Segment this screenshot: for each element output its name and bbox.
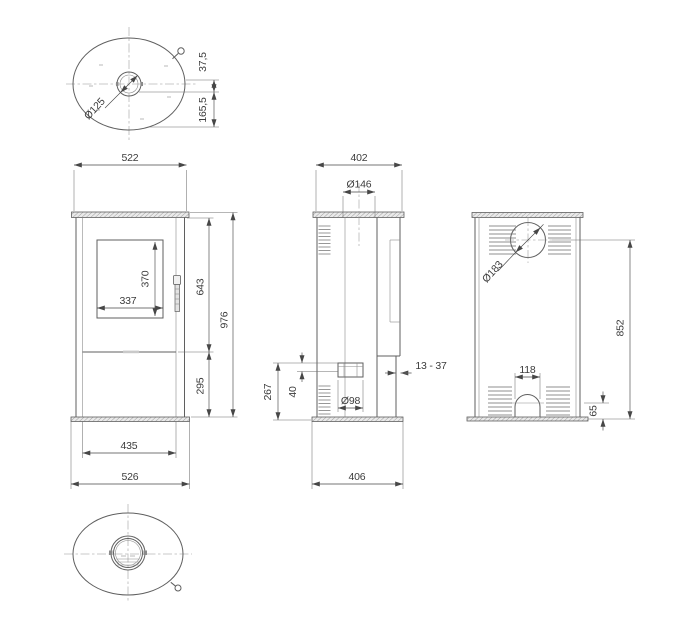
dim-front-top-plate-width: 522 [122, 152, 139, 164]
side-front-vents-top [319, 226, 331, 254]
dim-side-rear-outlet-offset: 40 [287, 386, 299, 398]
bottom-view-centerlines [64, 504, 192, 603]
dim-top-flue-diameter: Ø125 [82, 95, 108, 122]
back-vents-bottom-right [546, 387, 570, 415]
dim-front-upper-section-height: 643 [195, 278, 207, 295]
dim-top-rear-offset: 165,5 [197, 97, 209, 123]
technical-drawing-page: Ø125 37,5 165,5 [0, 0, 700, 628]
dim-front-total-height: 976 [219, 311, 231, 328]
dim-front-glass-width: 337 [120, 295, 137, 307]
front-view-dimensions: 522 370 337 643 295 976 435 526 [71, 152, 238, 489]
side-view: 402 Ø146 40 267 Ø98 13 - 37 406 [262, 152, 447, 489]
dim-back-rear-flue-center-height: 852 [615, 319, 627, 336]
front-view-outline [71, 212, 190, 422]
side-rear-outlet [338, 363, 363, 377]
bottom-flue-handle [171, 582, 181, 591]
front-view: 522 370 337 643 295 976 435 526 [71, 152, 238, 489]
dim-side-wall-gap-range: 13 - 37 [415, 360, 447, 372]
dim-side-rear-outlet-diameter: Ø98 [341, 395, 361, 407]
top-view-centerlines [66, 27, 196, 141]
back-view-outline [467, 213, 588, 422]
dim-front-panel-width: 435 [121, 440, 138, 452]
dim-back-bottom-opening-height: 65 [588, 405, 600, 417]
dim-side-base-plate-depth: 406 [349, 471, 366, 483]
dim-top-flue-offset: 37,5 [197, 52, 209, 72]
back-view: Ø183 852 118 65 [467, 213, 635, 431]
top-flue-handle [173, 48, 185, 59]
dim-side-top-flue-diameter: Ø146 [347, 179, 372, 191]
front-door-handle [174, 276, 181, 312]
dim-front-base-plate-width: 526 [122, 471, 139, 483]
dim-front-lower-section-height: 295 [195, 377, 207, 394]
dim-front-glass-height: 370 [140, 270, 152, 287]
dim-back-rear-flue-diameter: Ø183 [480, 258, 506, 285]
top-view: Ø125 37,5 165,5 [66, 27, 219, 141]
stove-dimension-drawing: Ø125 37,5 165,5 [0, 0, 700, 628]
dim-side-rear-outlet-height: 267 [262, 383, 274, 400]
side-front-vents-bottom [319, 386, 331, 414]
back-view-dimensions: 852 118 65 [515, 240, 635, 431]
dim-back-bottom-opening-width: 118 [519, 364, 535, 376]
dim-side-depth: 402 [351, 152, 368, 164]
bottom-view [64, 504, 192, 603]
side-view-dimensions: 402 Ø146 40 267 Ø98 13 - 37 406 [262, 152, 447, 489]
back-vents-bottom-left [488, 387, 512, 415]
